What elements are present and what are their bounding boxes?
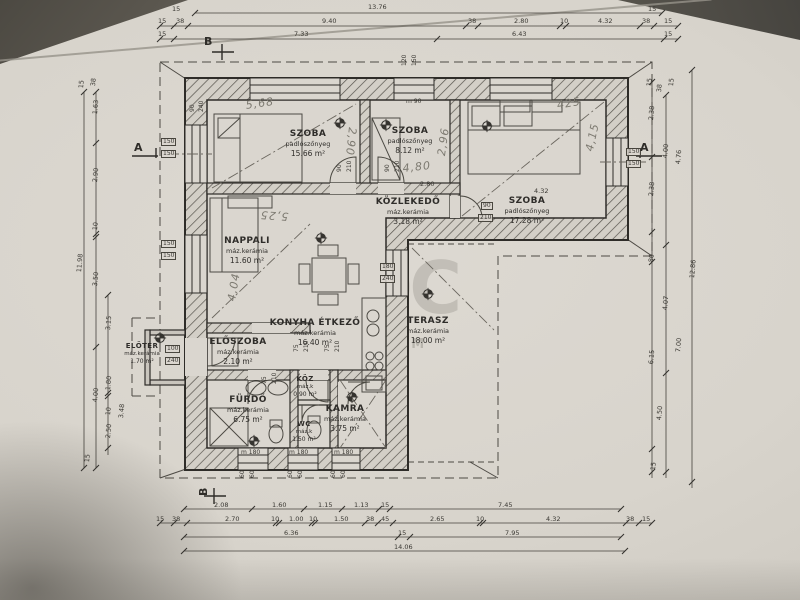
dimension-label: 1.00 [289, 516, 303, 523]
opening-size-label: m 180 [289, 450, 308, 456]
opening-size-label: 90 [190, 104, 196, 112]
dimension-label: 15 [158, 18, 166, 25]
dimension-label: 11.98 [76, 253, 84, 272]
dimension-label: 2.50 [105, 424, 113, 439]
dimension-label: 38 [468, 18, 476, 25]
dimension-label: 4.32 [534, 188, 548, 195]
dimension-label: 7.95 [505, 530, 519, 537]
opening-size-label: 150 [161, 240, 176, 248]
opening-size-label: 100 [165, 345, 180, 353]
opening-size-label: 150 [161, 150, 176, 158]
opening-size-label: 150 [161, 252, 176, 260]
opening-size-label: 60 [331, 470, 337, 478]
handwritten-note: 4,80 [402, 160, 431, 174]
section-marker-letter: B [198, 488, 209, 496]
dimension-label: 80 [648, 254, 655, 263]
opening-size-label: 210 [335, 341, 341, 352]
dimension-label: 12.86 [689, 259, 697, 278]
section-marker-letter: A [134, 142, 143, 153]
dimension-label: 15 [398, 530, 406, 537]
dimension-label: 38 [642, 18, 650, 25]
dimension-label: 7.45 [498, 502, 512, 509]
dimension-label: 3.48 [118, 404, 126, 419]
dimension-label: 10 [92, 222, 99, 231]
opening-size-label: 60 [250, 470, 256, 478]
opening-size-label: 60 [341, 470, 347, 478]
dimension-label: 4.32 [546, 516, 560, 523]
opening-size-label: 90 [337, 164, 343, 172]
opening-size-label: 210 [395, 161, 401, 172]
section-marker-letter: B [204, 36, 212, 47]
opening-size-label: 90 [481, 202, 493, 210]
handwritten-note: 5,68 [245, 96, 275, 111]
dimension-label: 10 [105, 407, 112, 416]
handwritten-note: 425 [556, 96, 582, 111]
dimension-label: 7.33 [294, 31, 308, 38]
dimension-label: 4.07 [662, 296, 670, 311]
floor-plan-photo: OC TTH ENTRUM [0, 0, 800, 600]
dimension-label: 15 [642, 516, 650, 523]
dimension-label: 2.80 [514, 18, 528, 25]
dimension-label: 2.80 [420, 181, 434, 188]
opening-size-label: m 90 [406, 99, 421, 105]
dimension-label: 38 [90, 78, 97, 87]
opening-size-label: 150 [161, 138, 176, 146]
dimension-label: 15 [664, 31, 672, 38]
dimension-label: 15 [650, 462, 657, 471]
dimension-label: 38 [172, 516, 180, 523]
handwritten-note: 2,90 [344, 127, 358, 156]
dimension-label: 15 [668, 78, 675, 87]
opening-size-label: 210 [347, 161, 353, 172]
dimension-label: 10 [271, 516, 279, 523]
opening-size-label: 120 [402, 55, 408, 66]
opening-size-label: 60 [288, 470, 294, 478]
dimension-label: 1.13 [354, 502, 368, 509]
opening-size-label: 60 [298, 470, 304, 478]
dimension-label: 10 [560, 18, 568, 25]
dimension-label: 38 [656, 84, 663, 93]
opening-size-label: 90 [385, 164, 391, 172]
handwritten-note: 2,96 [436, 127, 451, 157]
dimension-label: 3.15 [105, 316, 113, 331]
dimension-label: 2.70 [225, 516, 239, 523]
dimension-label: 15 [78, 80, 85, 89]
opening-size-label: 75 [294, 344, 300, 352]
dimension-label: 14.06 [394, 544, 413, 551]
section-marker-letter: A [640, 142, 649, 153]
opening-size-label: 210 [304, 341, 310, 352]
opening-size-label: 75 [325, 344, 331, 352]
opening-size-label: 210 [478, 214, 493, 222]
dimension-label: 6.43 [512, 31, 526, 38]
dimension-label: 4.76 [675, 150, 683, 165]
dimension-label: 3.50 [92, 272, 100, 287]
dimension-label: 15 [172, 6, 180, 13]
dimension-label: 1.50 [334, 516, 348, 523]
dimension-label: 45 [381, 516, 389, 523]
dimension-label: 6.36 [284, 530, 298, 537]
dimension-label: 15 [664, 18, 672, 25]
dimension-label: 9.40 [322, 18, 336, 25]
opening-size-label: 240 [380, 275, 395, 283]
dimension-label: 4.50 [656, 406, 664, 421]
opening-size-label: 75 [262, 376, 268, 384]
dimension-label: 7.00 [675, 338, 683, 353]
annotation-layer: 13.76151515389.40382.80104.323815157.336… [0, 0, 800, 600]
handwritten-note: 5,25 [260, 209, 289, 222]
dimension-label: 38 [366, 516, 374, 523]
opening-size-label: 60 [240, 470, 246, 478]
dimension-label: 38 [176, 18, 184, 25]
opening-size-label: 210 [272, 373, 278, 384]
dimension-label: 1.15 [318, 502, 332, 509]
dimension-label: 1.80 [105, 376, 113, 391]
dimension-label: 2.08 [214, 502, 228, 509]
dimension-label: 4.00 [92, 388, 100, 403]
dimension-label: 6.15 [648, 350, 656, 365]
dimension-label: 10 [309, 516, 317, 523]
dimension-label: 4.32 [598, 18, 612, 25]
opening-size-label: 150 [626, 160, 641, 168]
opening-size-label: 150 [412, 55, 418, 66]
opening-size-label: m 180 [241, 450, 260, 456]
dimension-label: 2.38 [648, 182, 656, 197]
dimension-label: 15 [156, 516, 164, 523]
dimension-label: 15 [648, 6, 656, 13]
dimension-label: 10 [476, 516, 484, 523]
opening-size-label: m 180 [334, 450, 353, 456]
handwritten-note: 4,15 [584, 122, 601, 152]
dimension-label: 2.90 [92, 168, 100, 183]
dimension-label: 4.00 [662, 144, 670, 159]
dimension-label: 15 [84, 454, 91, 463]
opening-size-label: 180 [380, 263, 395, 271]
opening-size-label: 240 [165, 357, 180, 365]
dimension-label: 1.63 [92, 100, 100, 115]
dimension-label: 1.60 [272, 502, 286, 509]
dimension-label: 2.65 [430, 516, 444, 523]
dimension-label: 38 [626, 516, 634, 523]
dimension-label: 15 [646, 78, 653, 87]
opening-size-label: 240 [199, 101, 205, 112]
dimension-label: 15 [158, 31, 166, 38]
dimension-label: 2.38 [648, 106, 656, 121]
handwritten-note: 4,04 [226, 272, 242, 302]
dimension-label: 15 [381, 502, 389, 509]
dimension-label: 13.76 [368, 4, 387, 11]
